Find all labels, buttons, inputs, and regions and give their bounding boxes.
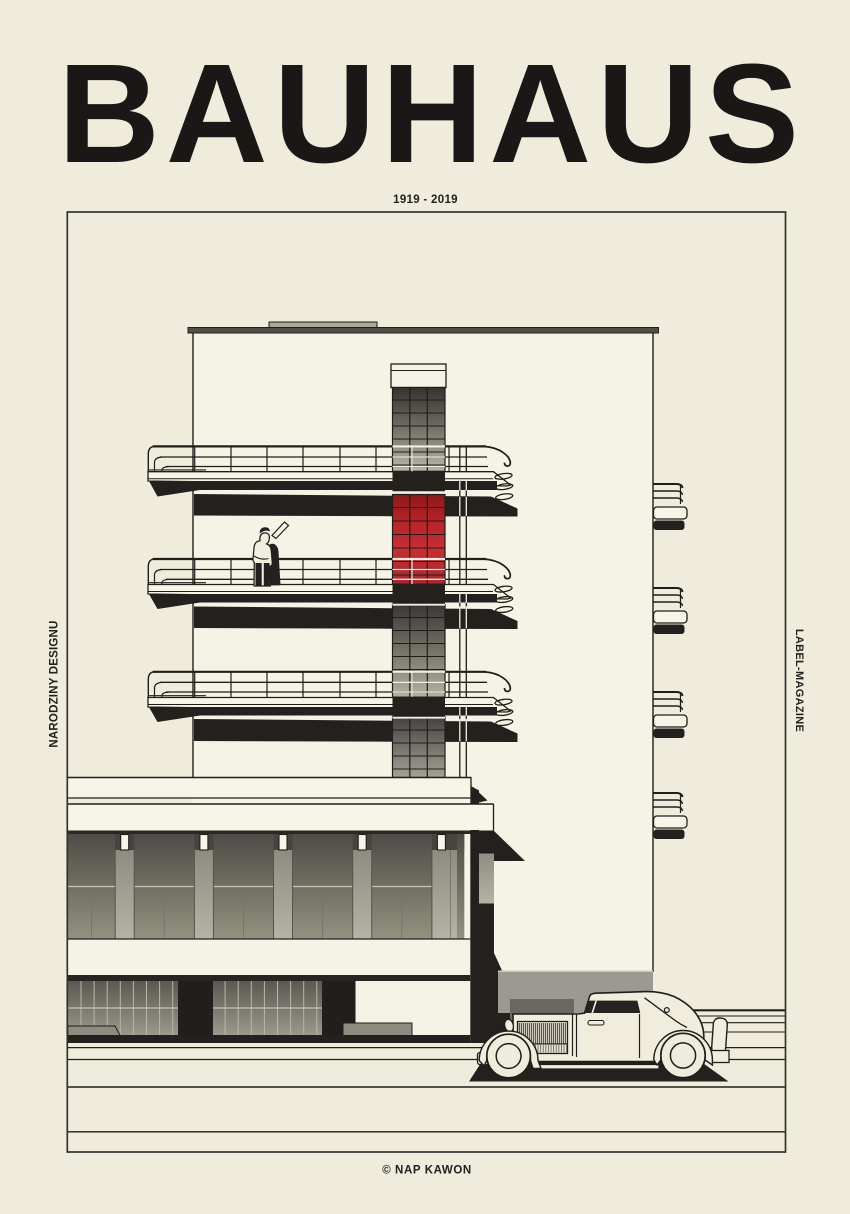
svg-text:1919 - 2019: 1919 - 2019 (393, 194, 458, 206)
svg-text:© NAP KAWON: © NAP KAWON (382, 1165, 472, 1177)
svg-text:LABEL-MAGAZINE: LABEL-MAGAZINE (793, 629, 805, 732)
svg-text:BAUHAUS: BAUHAUS (58, 34, 805, 192)
svg-text:NARODZINY DESIGNU: NARODZINY DESIGNU (49, 620, 61, 747)
